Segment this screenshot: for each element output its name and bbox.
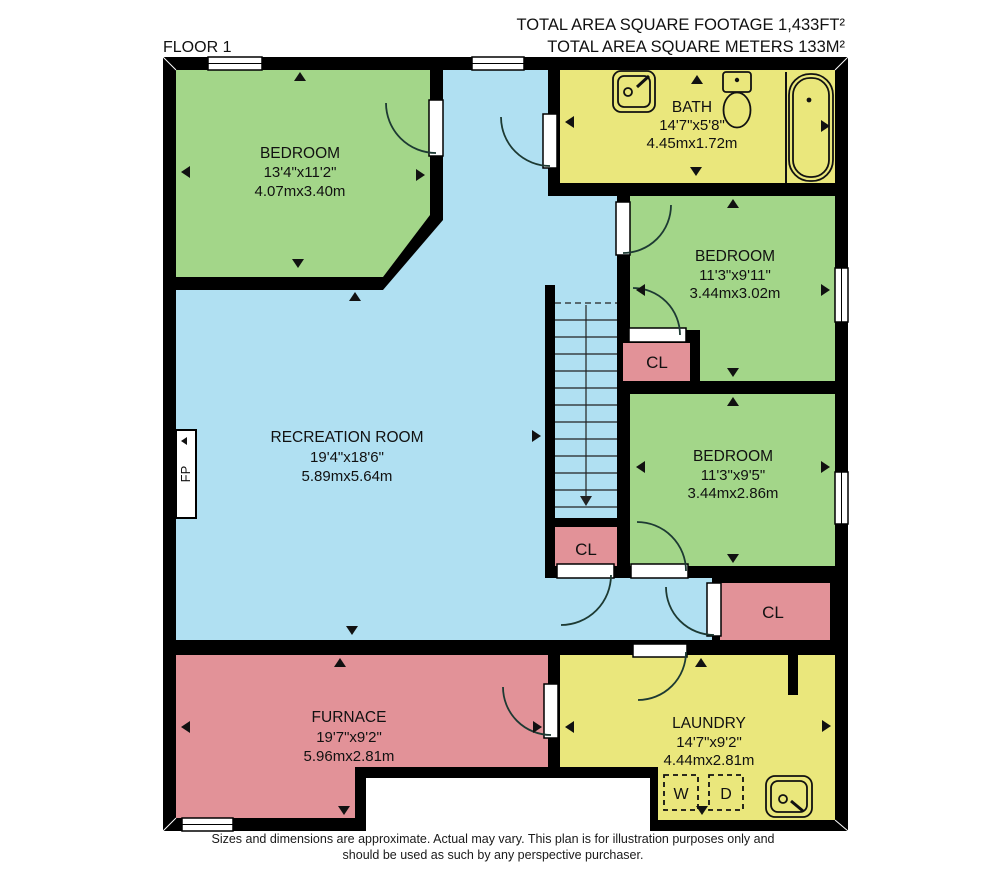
svg-text:11'3"x9'5": 11'3"x9'5" xyxy=(701,467,765,484)
room-label-bedroom-mid: BEDROOM 11'3"x9'11" 3.44mx3.02m xyxy=(690,248,781,302)
floor-plan-page: TOTAL AREA SQUARE FOOTAGE 1,433FT² TOTAL… xyxy=(0,0,1000,886)
fireplace-label: FP xyxy=(178,466,193,483)
room-label-laundry: LAUNDRY 14'7"x9'2" 4.44mx2.81m xyxy=(664,715,755,769)
room-label-bedroom-low: BEDROOM 11'3"x9'5" 3.44mx2.86m xyxy=(688,448,779,502)
disclaimer-line2: should be used as such by any perspectiv… xyxy=(343,848,644,862)
svg-text:BEDROOM: BEDROOM xyxy=(695,248,775,265)
room-label-furnace: FURNACE 19'7"x9'2" 5.96mx2.81m xyxy=(304,709,395,765)
svg-text:BATH: BATH xyxy=(672,99,712,116)
total-area-meters: TOTAL AREA SQUARE METERS 133M² xyxy=(547,38,845,56)
svg-text:RECREATION ROOM: RECREATION ROOM xyxy=(271,429,424,446)
window-icon xyxy=(208,57,262,70)
svg-text:4.45mx1.72m: 4.45mx1.72m xyxy=(647,135,738,152)
svg-text:BEDROOM: BEDROOM xyxy=(260,145,340,162)
dryer-label: D xyxy=(720,786,732,803)
floor-label: FLOOR 1 xyxy=(163,39,232,56)
window-icon xyxy=(835,472,848,524)
closet-hall-label: CL xyxy=(762,603,784,622)
closet-stairs-label: CL xyxy=(575,540,597,559)
svg-text:LAUNDRY: LAUNDRY xyxy=(672,715,746,732)
svg-text:3.44mx3.02m: 3.44mx3.02m xyxy=(690,285,781,302)
svg-text:11'3"x9'11": 11'3"x9'11" xyxy=(699,267,771,284)
svg-text:3.44mx2.86m: 3.44mx2.86m xyxy=(688,485,779,502)
svg-text:19'7"x9'2": 19'7"x9'2" xyxy=(316,729,382,746)
svg-text:BEDROOM: BEDROOM xyxy=(693,448,773,465)
window-icon xyxy=(182,818,233,831)
washer-label: W xyxy=(673,786,689,803)
window-icon xyxy=(835,268,848,322)
svg-text:14'7"x9'2": 14'7"x9'2" xyxy=(676,734,742,751)
svg-text:13'4"x11'2": 13'4"x11'2" xyxy=(264,164,337,181)
disclaimer-line1: Sizes and dimensions are approximate. Ac… xyxy=(211,832,774,846)
floor-plan-canvas: TOTAL AREA SQUARE FOOTAGE 1,433FT² TOTAL… xyxy=(0,0,1000,886)
svg-text:FURNACE: FURNACE xyxy=(312,709,387,726)
closet-mid-label: CL xyxy=(646,353,668,372)
svg-text:4.07mx3.40m: 4.07mx3.40m xyxy=(255,183,346,200)
room-label-bedroom-topleft: BEDROOM 13'4"x11'2" 4.07mx3.40m xyxy=(255,145,346,200)
svg-text:19'4"x18'6": 19'4"x18'6" xyxy=(310,449,384,466)
svg-text:5.96mx2.81m: 5.96mx2.81m xyxy=(304,748,395,765)
total-area-footage: TOTAL AREA SQUARE FOOTAGE 1,433FT² xyxy=(516,16,845,34)
svg-text:5.89mx5.64m: 5.89mx5.64m xyxy=(302,468,393,485)
window-icon xyxy=(472,57,524,70)
svg-text:4.44mx2.81m: 4.44mx2.81m xyxy=(664,752,755,769)
svg-text:14'7"x5'8": 14'7"x5'8" xyxy=(659,117,725,134)
